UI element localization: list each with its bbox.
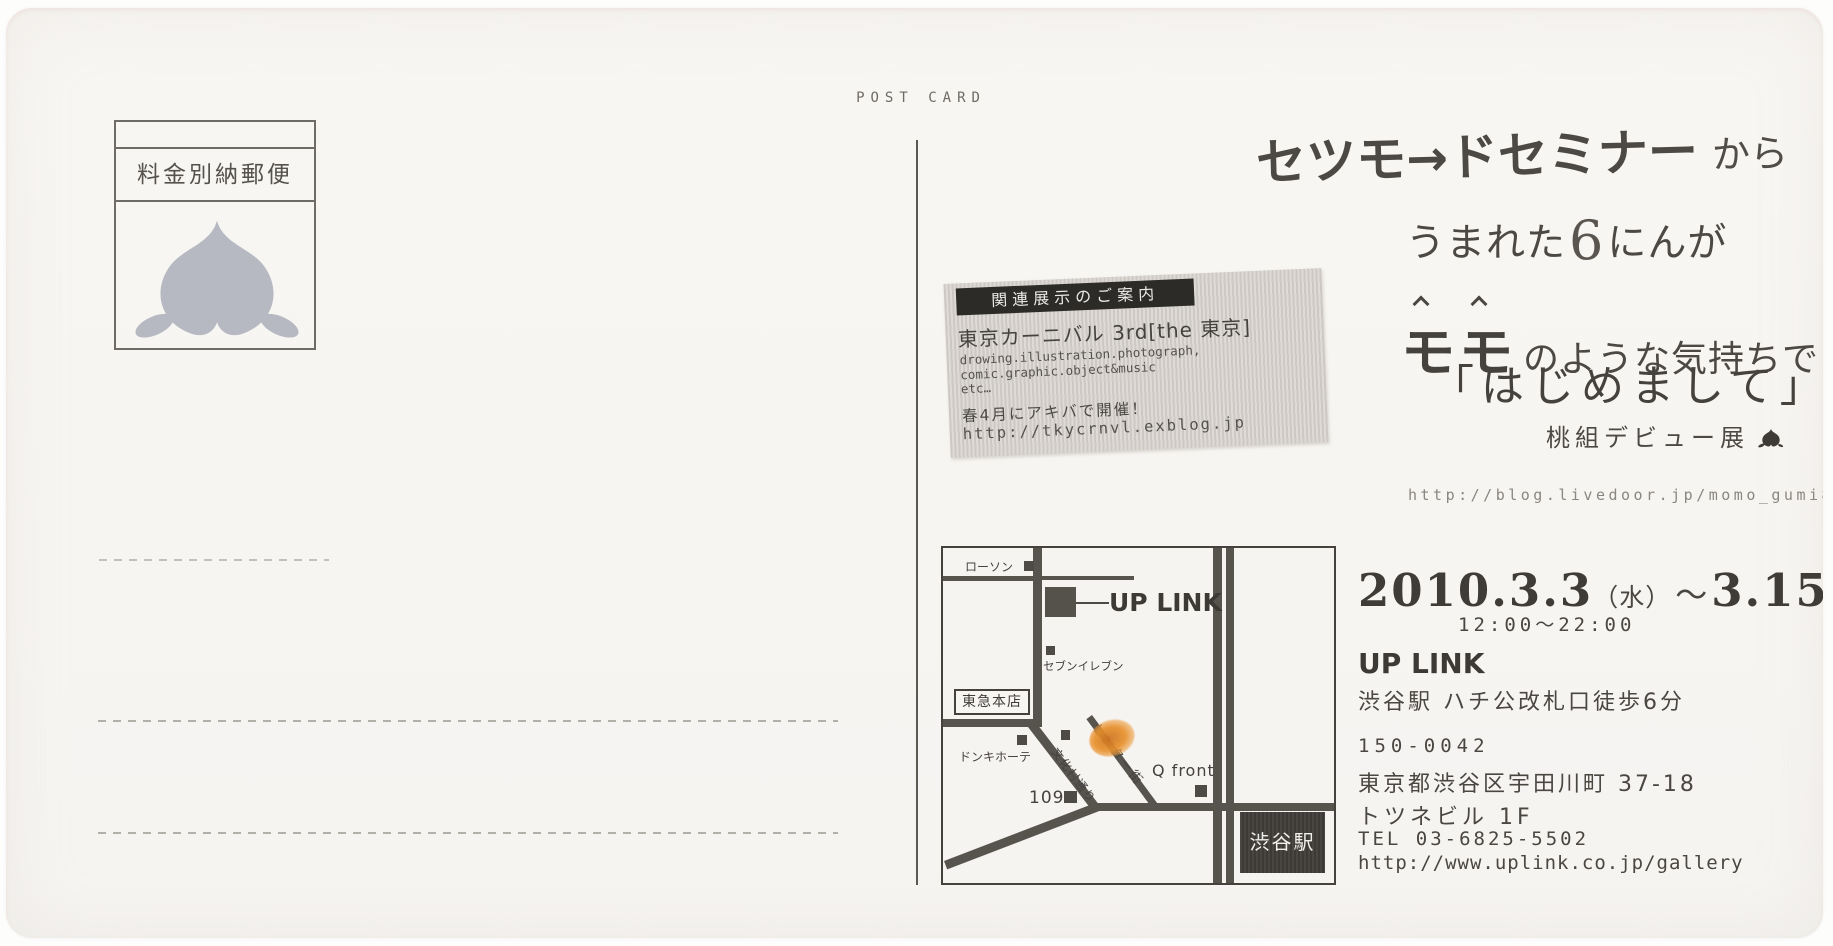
uplink-connector-line (1076, 602, 1109, 604)
seven-eleven-square (1046, 646, 1055, 655)
headline-line2-pre: うまれた (1406, 221, 1566, 266)
date-tilde: ～ (1675, 576, 1707, 614)
headline-number-six: 6 (1569, 209, 1604, 272)
blog-url: http://blog.livedoor.jp/momo_gumi8/ (1408, 486, 1823, 504)
address-dashed-line-1 (99, 559, 329, 561)
postage-paid-label: 料金別納郵便 (116, 155, 314, 189)
venue-name: UP LINK (1358, 647, 1484, 680)
small-peach-icon (1758, 427, 1784, 449)
access-map: ローソン UP LINK セブンイレブン 東急本店 ドンキホーテ 文化村通り セ… (941, 546, 1336, 885)
road-top-right (1040, 576, 1134, 580)
address-dashed-line-3 (98, 832, 838, 834)
headline-line2-post: にんが (1607, 221, 1727, 266)
venue-access: 渋谷駅 ハチ公改札口徒歩6分 (1358, 684, 1685, 716)
opening-hours: 12:00～22:00 (1458, 610, 1635, 637)
map-label-shibuya-station: 渋谷駅 (1240, 812, 1325, 873)
headline-line1-suffix: から (1711, 131, 1788, 177)
headline-line2: うまれた6にんが (1406, 206, 1727, 269)
lawson-building-square (1024, 561, 1034, 571)
map-label-seven-eleven: セブンイレブン (1043, 658, 1124, 674)
venue-address-line1: 東京都渋谷区宇田川町 37-18 (1358, 766, 1697, 798)
headline-line1: セツモ→ドセミナーから (1255, 109, 1789, 195)
bunkamura-side-square (1061, 730, 1070, 740)
peach-icon (132, 214, 302, 346)
date-start-dow: （水） (1593, 583, 1671, 612)
venue-website-url: http://www.uplink.co.jp/gallery (1358, 852, 1744, 874)
road-diagonal-bottom-left (944, 802, 1100, 869)
center-divider-line (916, 140, 918, 885)
exhibition-subtitle-text: 桃組デビュー展 (1546, 418, 1749, 453)
headline-hajimemashite: 「はじめまして」 (1431, 352, 1823, 414)
stamp-rule-top (116, 147, 314, 149)
setsu-mode-seminar-logo: セツモ→ドセミナー (1255, 122, 1698, 192)
leaf-hat-icon (1471, 296, 1488, 313)
leaf-hat-icon (1413, 296, 1430, 313)
map-label-uplink: UP LINK (1109, 588, 1222, 617)
postage-paid-stamp-box: 料金別納郵便 (114, 120, 316, 350)
venue-tel: TEL 03-6825-5502 (1358, 828, 1589, 850)
map-label-tokyu-honten: 東急本店 (954, 689, 1030, 715)
related-exhibition-sticker: 関連展示のご案内 東京カーニバル 3rd[the 東京] drowing.ill… (944, 268, 1329, 458)
address-dashed-line-2 (98, 720, 838, 722)
map-109-square (1064, 791, 1077, 803)
postcard-scan: POST CARD 料金別納郵便 関連展示のご案内 東京カーニバル 3rd[th… (6, 8, 1823, 938)
road-vertical-left (1033, 548, 1042, 723)
uplink-building-square (1045, 587, 1076, 617)
postal-code: 150-0042 (1358, 735, 1490, 757)
map-label-donki: ドンキホーテ (959, 748, 1031, 765)
exhibition-subtitle: 桃組デビュー展 (1546, 418, 1784, 453)
map-label-qfront: Q front (1152, 761, 1215, 780)
sticker-description: drowing.illustration.photograph, comic.g… (959, 343, 1201, 397)
map-label-109: 109 (1029, 788, 1064, 808)
map-label-lawson: ローソン (965, 558, 1013, 575)
stamp-rule-bottom (116, 200, 314, 202)
road-top-left (943, 576, 1041, 581)
venue-address-line2: トツネビル 1F (1358, 799, 1534, 831)
date-end: 3.15 (1711, 564, 1823, 617)
road-vertical-right-2 (1226, 548, 1234, 885)
donki-square (1017, 735, 1027, 745)
postcard-title: POST CARD (851, 90, 991, 106)
sticker-header: 関連展示のご案内 (956, 279, 1195, 316)
qfront-square (1195, 785, 1207, 797)
